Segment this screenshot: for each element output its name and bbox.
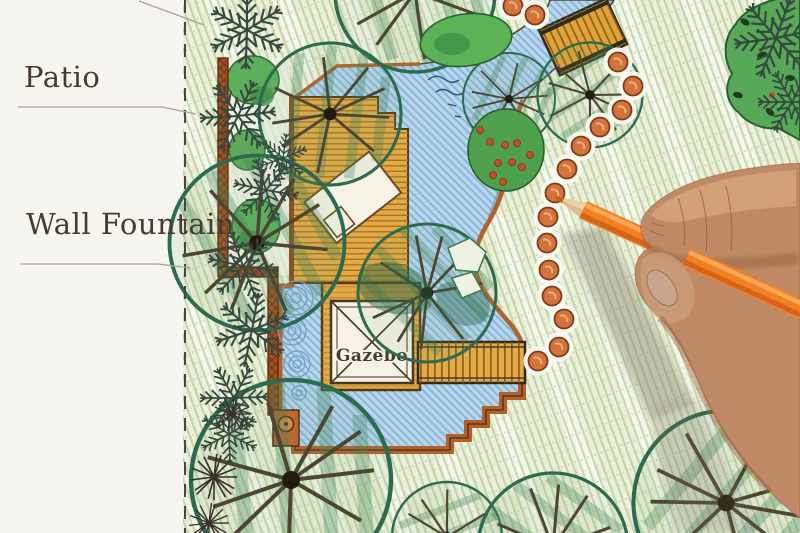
wall-fountain-label: Wall Fountain (26, 207, 235, 241)
patio-label: Patio (24, 60, 100, 94)
landscape-plan-photo: Gazebo (0, 0, 800, 533)
plan-drawing: Gazebo (0, 0, 800, 533)
